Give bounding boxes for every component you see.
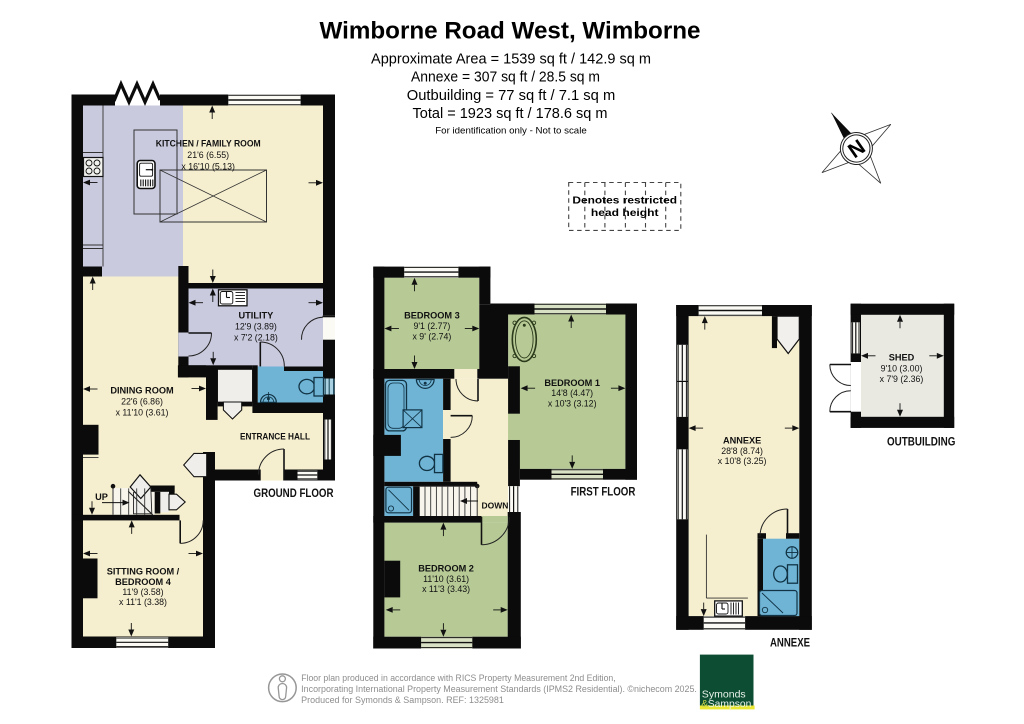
svg-text:x 10'3 (3.12): x 10'3 (3.12): [548, 399, 597, 409]
svg-text:OUTBUILDING: OUTBUILDING: [887, 436, 955, 448]
svg-text:21'6 (6.55): 21'6 (6.55): [187, 150, 229, 160]
svg-text:Produced for Symonds & Sampson: Produced for Symonds & Sampson. REF: 132…: [301, 695, 504, 705]
svg-text:Annexe = 307 sq ft / 28.5 sq m: Annexe = 307 sq ft / 28.5 sq m: [411, 70, 600, 86]
svg-text:ANNEXE: ANNEXE: [723, 436, 761, 446]
svg-text:DINING ROOM: DINING ROOM: [110, 386, 174, 396]
svg-text:UTILITY: UTILITY: [239, 310, 274, 320]
svg-text:9'10 (3.00): 9'10 (3.00): [881, 364, 923, 374]
svg-text:9'1 (2.77): 9'1 (2.77): [413, 321, 450, 331]
svg-text:x 16'10 (5.13): x 16'10 (5.13): [181, 162, 235, 172]
svg-text:Floor plan produced in accorda: Floor plan produced in accordance with R…: [301, 673, 616, 683]
svg-text:DOWN: DOWN: [482, 501, 509, 511]
svg-text:ANNEXE: ANNEXE: [770, 637, 810, 649]
svg-text:x 10'8 (3.25): x 10'8 (3.25): [718, 456, 767, 466]
svg-text:SHED: SHED: [889, 353, 915, 363]
svg-text:Denotes restricted: Denotes restricted: [572, 195, 677, 207]
svg-text:11'10 (3.61): 11'10 (3.61): [423, 574, 469, 584]
svg-text:BEDROOM 1: BEDROOM 1: [544, 378, 600, 388]
svg-text:For identification only - Not: For identification only - Not to scale: [435, 126, 587, 137]
svg-text:22'6 (6.86): 22'6 (6.86): [121, 397, 163, 407]
svg-text:11'9 (3.58): 11'9 (3.58): [122, 587, 163, 597]
svg-text:x 11'10 (3.61): x 11'10 (3.61): [116, 408, 169, 418]
svg-text:UP: UP: [95, 492, 108, 502]
svg-text:x 7'9 (2.36): x 7'9 (2.36): [880, 374, 924, 384]
svg-text:14'8 (4.47): 14'8 (4.47): [551, 388, 593, 398]
svg-text:BEDROOM 3: BEDROOM 3: [404, 311, 460, 321]
svg-text:GROUND FLOOR: GROUND FLOOR: [254, 488, 335, 500]
svg-text:Incorporating International Pr: Incorporating International Property Mea…: [301, 684, 697, 694]
svg-text:x 11'1 (3.38): x 11'1 (3.38): [119, 597, 167, 607]
svg-text:x 11'3 (3.43): x 11'3 (3.43): [422, 584, 470, 594]
svg-text:head height: head height: [591, 207, 659, 219]
svg-text:SITTING ROOM /: SITTING ROOM /: [107, 567, 180, 577]
svg-text:x 9' (2.74): x 9' (2.74): [412, 331, 451, 341]
svg-text:12'9 (3.89): 12'9 (3.89): [235, 322, 277, 332]
svg-text:Outbuilding = 77 sq ft / 7.1 s: Outbuilding = 77 sq ft / 7.1 sq m: [407, 88, 616, 104]
svg-text:ENTRANCE HALL: ENTRANCE HALL: [240, 432, 310, 442]
svg-text:28'8 (8.74): 28'8 (8.74): [721, 446, 763, 456]
svg-text:KITCHEN / FAMILY ROOM: KITCHEN / FAMILY ROOM: [156, 138, 261, 148]
svg-text:BEDROOM 4: BEDROOM 4: [115, 577, 172, 587]
svg-text:Sampson: Sampson: [708, 698, 752, 710]
svg-text:Approximate Area = 1539 sq ft: Approximate Area = 1539 sq ft / 142.9 sq…: [371, 52, 651, 68]
svg-text:BEDROOM 2: BEDROOM 2: [418, 564, 474, 574]
svg-text:Total = 1923 sq ft / 178.6 sq: Total = 1923 sq ft / 178.6 sq m: [413, 106, 608, 122]
svg-text:FIRST FLOOR: FIRST FLOOR: [571, 487, 636, 499]
svg-text:x 7'2 (2.18): x 7'2 (2.18): [234, 333, 278, 343]
svg-text:Wimborne Road West, Wimborne: Wimborne Road West, Wimborne: [320, 17, 701, 44]
